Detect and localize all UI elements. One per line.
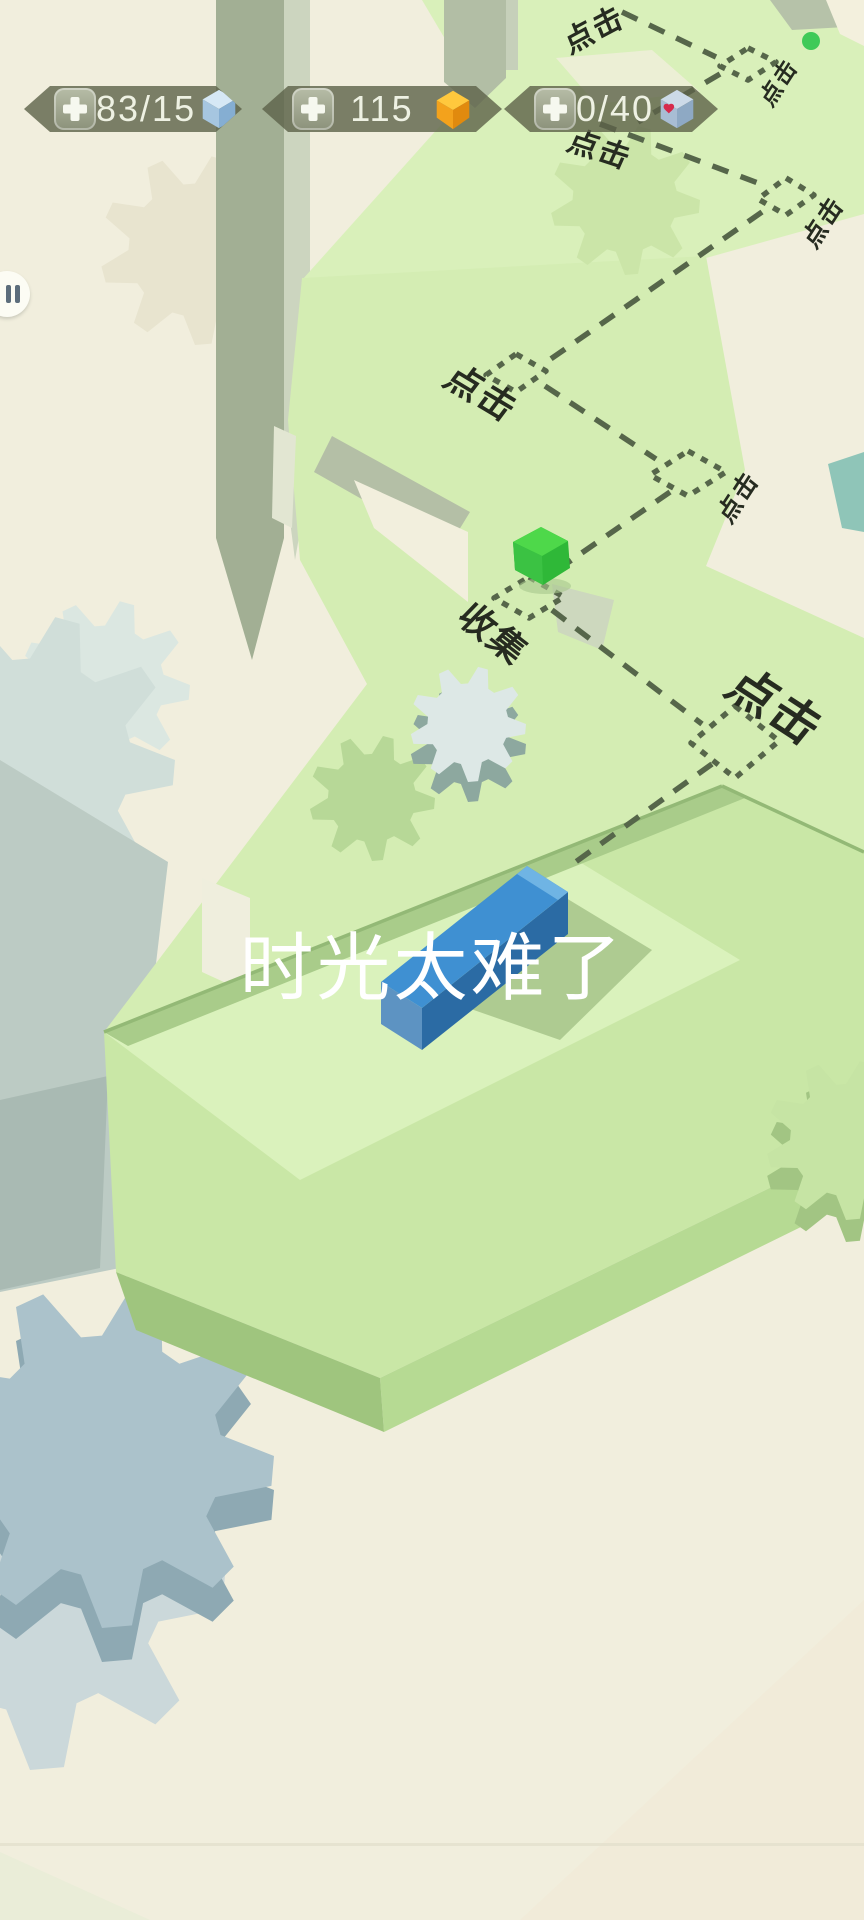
plus-icon[interactable] xyxy=(54,88,96,130)
counter-lives[interactable]: 0/40 xyxy=(504,86,718,132)
blocks-count: 83/15 xyxy=(96,91,196,127)
counter-gold[interactable]: 115 xyxy=(262,86,502,132)
gold-gem-icon xyxy=(430,85,476,133)
heart-cube-icon xyxy=(654,85,700,133)
counter-blocks[interactable]: 83/15 xyxy=(24,86,242,132)
pause-icon xyxy=(6,285,11,303)
pause-icon xyxy=(15,285,20,303)
plus-icon[interactable] xyxy=(534,88,576,130)
lives-count: 0/40 xyxy=(576,91,654,127)
game-scene[interactable]: 点击 点击 点击 点击 点击 点击 收集 点击 时光太难了 83/15 115 xyxy=(0,0,864,1920)
path-start-dot xyxy=(802,32,820,50)
hud: 83/15 115 0/40 xyxy=(0,86,864,132)
level-title: 时光太难了 xyxy=(240,909,625,1016)
gold-count: 115 xyxy=(350,91,413,127)
blue-cube-icon xyxy=(196,85,242,133)
plus-icon[interactable] xyxy=(292,88,334,130)
